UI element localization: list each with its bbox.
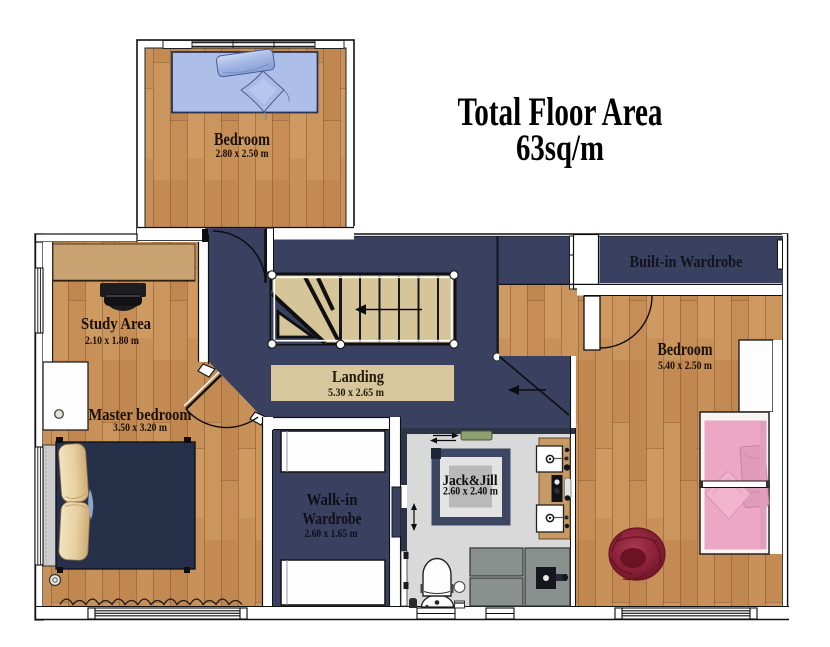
- svg-text:2.60 x 2.40 m: 2.60 x 2.40 m: [443, 486, 498, 498]
- svg-text:Walk-in: Walk-in: [307, 490, 358, 509]
- svg-text:Built-in Wardrobe: Built-in Wardrobe: [630, 252, 743, 271]
- svg-text:Bedroom: Bedroom: [214, 129, 270, 149]
- svg-text:2.80 x 2.50 m: 2.80 x 2.50 m: [216, 148, 269, 160]
- svg-text:3.50 x 3.20 m: 3.50 x 3.20 m: [113, 422, 167, 434]
- svg-text:Wardrobe: Wardrobe: [303, 509, 362, 528]
- svg-text:5.40 x 2.50 m: 5.40 x 2.50 m: [658, 360, 712, 372]
- svg-text:Landing: Landing: [332, 367, 384, 386]
- svg-text:5.30 x 2.65 m: 5.30 x 2.65 m: [328, 385, 384, 399]
- svg-text:Bedroom: Bedroom: [658, 339, 713, 359]
- svg-text:63sq/m: 63sq/m: [516, 128, 604, 169]
- svg-text:2.10 x 1.80 m: 2.10 x 1.80 m: [85, 335, 139, 347]
- svg-text:Study Area: Study Area: [81, 314, 151, 333]
- svg-text:2.60 x 1.65 m: 2.60 x 1.65 m: [305, 528, 358, 540]
